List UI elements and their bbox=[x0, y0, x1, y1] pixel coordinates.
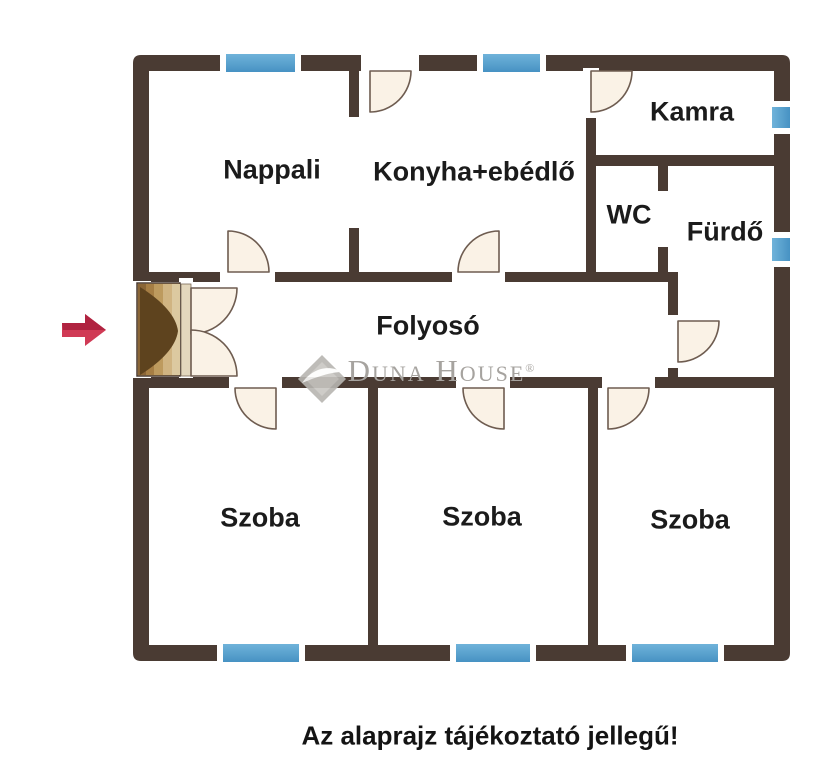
disclaimer-caption: Az alaprajz tájékoztató jellegű! bbox=[301, 721, 678, 752]
door-swing-icon bbox=[463, 388, 504, 429]
door-swing-icon bbox=[370, 71, 411, 112]
window-icon bbox=[483, 54, 540, 72]
brand-watermark: Duna House® bbox=[348, 353, 535, 389]
room-label-wc: WC bbox=[607, 200, 652, 231]
room-label-nappali: Nappali bbox=[223, 155, 321, 186]
door-swing-icon bbox=[678, 321, 719, 362]
window-icon bbox=[772, 238, 790, 261]
room-label-szoba-1: Szoba bbox=[220, 503, 300, 534]
room-label-furdo: Fürdő bbox=[687, 217, 763, 248]
door-swing-icon bbox=[228, 231, 269, 272]
door-swing-icon bbox=[191, 330, 237, 376]
room-label-szoba-3: Szoba bbox=[650, 505, 730, 536]
door-swing-icon bbox=[608, 388, 649, 429]
room-label-konyha: Konyha+ebédlő bbox=[373, 157, 575, 188]
window-icon bbox=[772, 107, 790, 128]
door-swing-icon bbox=[458, 231, 499, 272]
registered-mark: ® bbox=[525, 361, 534, 375]
window-icon bbox=[632, 644, 718, 662]
door-swing-icon bbox=[591, 71, 632, 112]
window-icon bbox=[456, 644, 530, 662]
window-icon bbox=[226, 54, 295, 72]
brand-logo-diamond-icon bbox=[298, 355, 346, 403]
room-label-folyoso: Folyosó bbox=[376, 311, 480, 342]
entrance-arrow-icon bbox=[62, 314, 106, 346]
door-swing-icon bbox=[235, 388, 276, 429]
window-icon bbox=[223, 644, 299, 662]
entrance-door bbox=[137, 283, 237, 376]
door-swing-icon bbox=[191, 288, 237, 334]
room-label-szoba-2: Szoba bbox=[442, 502, 522, 533]
floorplan-page: Nappali Konyha+ebédlő Kamra WC Fürdő Fol… bbox=[0, 0, 832, 768]
brand-watermark-name: Duna House bbox=[348, 353, 526, 388]
room-label-kamra: Kamra bbox=[650, 97, 734, 128]
